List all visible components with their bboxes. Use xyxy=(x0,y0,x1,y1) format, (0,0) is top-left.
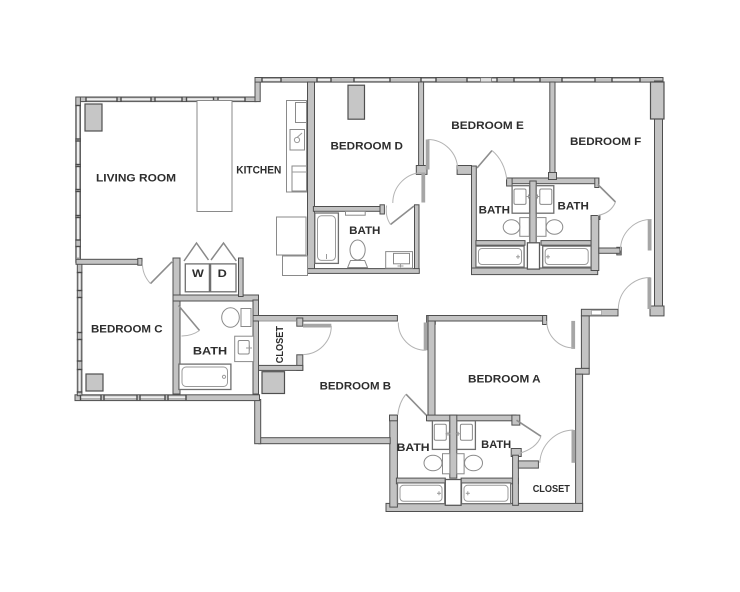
svg-text:BATH: BATH xyxy=(349,225,380,237)
svg-text:D: D xyxy=(218,268,227,280)
svg-text:BATH: BATH xyxy=(193,346,227,358)
svg-text:KITCHEN: KITCHEN xyxy=(236,164,281,176)
svg-text:BATH: BATH xyxy=(481,439,511,451)
svg-text:CLOSET: CLOSET xyxy=(533,484,570,495)
svg-text:LIVING ROOM: LIVING ROOM xyxy=(96,173,176,185)
svg-text:CLOSET: CLOSET xyxy=(275,326,286,363)
svg-text:BATH: BATH xyxy=(479,205,510,217)
svg-text:BEDROOM B: BEDROOM B xyxy=(320,381,391,393)
svg-text:BATH: BATH xyxy=(397,442,430,454)
svg-text:W: W xyxy=(192,268,204,280)
svg-text:BEDROOM A: BEDROOM A xyxy=(468,374,541,386)
svg-text:BEDROOM F: BEDROOM F xyxy=(570,136,642,148)
svg-text:BATH: BATH xyxy=(558,201,589,213)
svg-text:BEDROOM E: BEDROOM E xyxy=(451,120,524,132)
svg-text:BEDROOM D: BEDROOM D xyxy=(331,141,403,153)
svg-text:BEDROOM C: BEDROOM C xyxy=(91,323,163,335)
